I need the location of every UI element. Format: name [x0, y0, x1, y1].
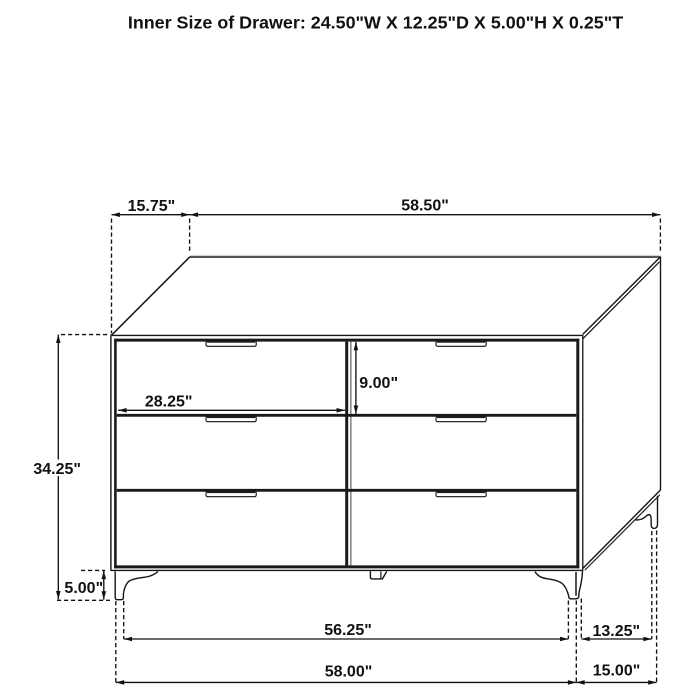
svg-text:13.25": 13.25": [592, 623, 640, 640]
svg-text:15.75": 15.75": [128, 198, 176, 215]
svg-text:56.25": 56.25": [324, 622, 372, 639]
svg-text:34.25": 34.25": [33, 461, 81, 478]
svg-text:58.50": 58.50": [401, 198, 449, 215]
svg-text:5.00": 5.00": [64, 580, 103, 597]
svg-text:9.00": 9.00": [359, 375, 398, 392]
svg-text:58.00": 58.00": [325, 664, 373, 681]
svg-text:28.25": 28.25": [145, 393, 193, 410]
svg-text:Inner Size of Drawer: 24.50"W: Inner Size of Drawer: 24.50"W X 12.25"D …: [128, 12, 623, 32]
svg-text:15.00": 15.00": [593, 663, 641, 680]
